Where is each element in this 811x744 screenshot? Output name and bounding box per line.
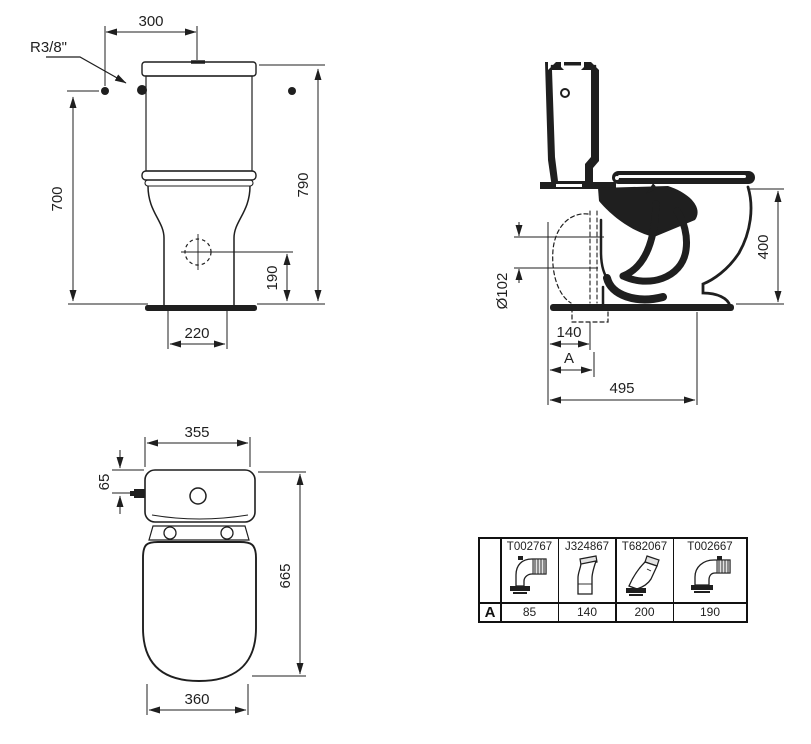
dim-label-300: 300 [138, 13, 163, 30]
dim-label-360: 360 [184, 691, 209, 708]
table-row-label-A: A [480, 604, 500, 621]
inlet-tap [134, 489, 145, 498]
dim-label-220: 220 [184, 325, 209, 342]
angled-connector-icon [623, 555, 667, 597]
cistern-lid-edge [152, 515, 248, 519]
dim-label-A: A [564, 350, 574, 367]
lid-clip-right [594, 65, 597, 68]
supply-ref-dot-left [101, 87, 109, 95]
dim-label-65: 65 [96, 474, 113, 491]
hinge-left [164, 527, 176, 539]
table-value-cell: 140 [559, 604, 615, 621]
accessories-table: T002767 J324867 T682067 T002667 [478, 537, 748, 623]
cistern-body [146, 76, 252, 171]
table-col-t682067: T682067 [617, 539, 673, 602]
table-value-cell: 200 [617, 604, 673, 621]
pedestal-left [148, 186, 164, 305]
part-code: T002667 [687, 540, 732, 554]
top-view-outline [130, 470, 256, 681]
inlet-leader-arrow [46, 57, 126, 83]
dim-label-400: 400 [755, 234, 772, 259]
pedestal-right [234, 186, 250, 305]
seat-lid-edge [142, 171, 256, 180]
dim-label-700: 700 [49, 186, 66, 211]
part-code: J324867 [565, 540, 609, 554]
seat-hinge-dot [615, 176, 619, 180]
inlet-valve-dot [137, 85, 147, 95]
seat-side-stripe [618, 175, 746, 178]
part-code: T002767 [507, 540, 552, 554]
cistern-side-hole [561, 89, 569, 97]
pan-back-line [601, 220, 609, 281]
technical-drawing-page: 300 R3/8" 700 790 190 220 [0, 0, 811, 744]
connector-dashed-curve [553, 214, 588, 303]
front-view-dimensions [46, 26, 325, 349]
seat-ring-edge [145, 180, 253, 186]
toilet-technical-drawing: 300 R3/8" 700 790 190 220 [0, 0, 811, 744]
side-view-labels: Ø102 140 A 495 400 [494, 234, 772, 397]
elbow-corrugated-connector-icon [508, 555, 552, 597]
table-corner-cell [480, 539, 500, 602]
dim-label-495: 495 [609, 380, 634, 397]
seat-top-outline [143, 542, 256, 681]
hinge-right [221, 527, 233, 539]
tank-shelf-slot [556, 184, 582, 187]
supply-ref-dot-right [288, 87, 296, 95]
vertical-offset-connector-icon [565, 555, 609, 597]
table-col-j324867: J324867 [559, 539, 615, 602]
floor-bar [550, 304, 734, 311]
dim-label-190: 190 [264, 265, 281, 290]
part-code: T682067 [622, 540, 667, 554]
cistern-lid [142, 62, 256, 76]
table-col-t002767: T002767 [502, 539, 558, 602]
dim-label-inlet-thread: R3/8" [30, 39, 67, 56]
base-plinth [145, 305, 257, 311]
cistern-lid-seam [564, 62, 581, 66]
flush-button [190, 488, 206, 504]
table-col-t002667: T002667 [674, 539, 746, 602]
top-view-labels: 355 65 665 360 [96, 424, 294, 708]
dim-label-140: 140 [556, 324, 581, 341]
dim-label-790: 790 [295, 172, 312, 197]
dim-label-outlet-diameter: Ø102 [494, 273, 511, 310]
dim-label-355: 355 [184, 424, 209, 441]
table-value-cell: 190 [674, 604, 746, 621]
lid-clip-left [551, 65, 554, 68]
table-value-cell: 85 [502, 604, 558, 621]
bowl-outer-profile [703, 187, 751, 306]
bend-corrugated-connector-icon [688, 555, 732, 597]
side-view-outline [540, 62, 755, 311]
cistern-top [145, 470, 255, 522]
dim-label-665: 665 [277, 563, 294, 588]
